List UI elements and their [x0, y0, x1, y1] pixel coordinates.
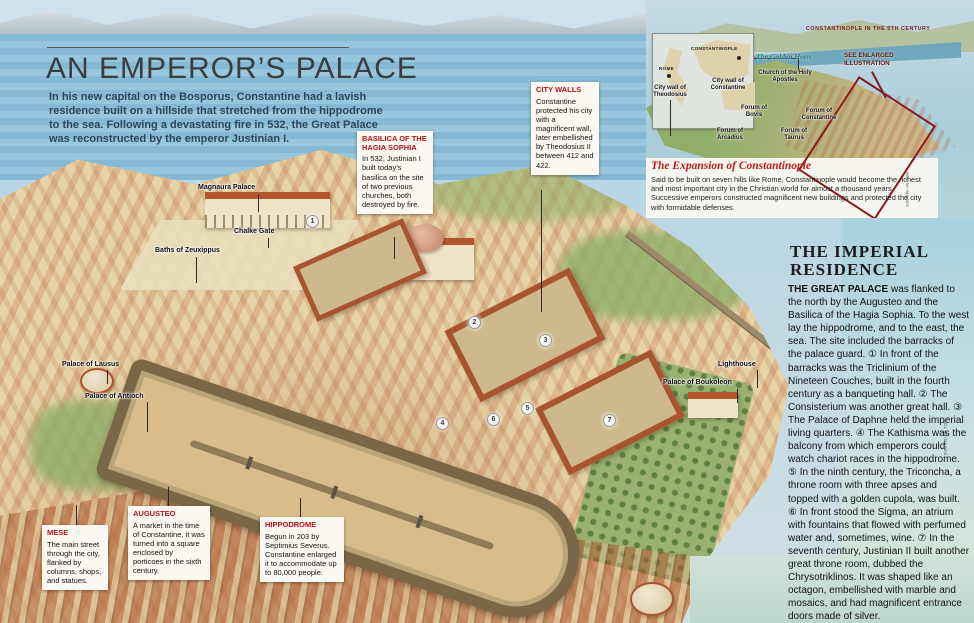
label-chalke-gate: Chalke Gate	[234, 228, 274, 235]
callout-body: A market in the time of Constantine, it …	[133, 521, 205, 576]
callout-hippodrome: HIPPODROME Begun in 203 by Septimius Sev…	[260, 517, 344, 582]
locator-rome-label: ROME	[659, 66, 674, 71]
sidebar-lead: THE GREAT PALACE	[788, 284, 888, 295]
marker-7: 7	[603, 414, 616, 427]
label-forum-of-constantine: Forum of Constantine	[794, 108, 844, 121]
callout-body: Constantine protected his city with a ma…	[536, 97, 594, 170]
label-city-wall-theodosius: City wall of Theodosius	[646, 85, 696, 98]
leader-line	[300, 498, 301, 517]
inset-credit: SOL 90 IMAGES	[905, 172, 910, 207]
callout-title: AUGUSTEO	[133, 510, 205, 519]
leader-line	[541, 190, 542, 312]
sidebar-text: was flanked to the north by the Augusteo…	[788, 284, 969, 622]
constantinople-dot	[737, 56, 741, 60]
label-golden-horn: The Golden Horn	[756, 52, 811, 61]
label-magnaura-palace: Magnaura Palace	[198, 184, 255, 191]
label-church-holy-apostles: Church of the Holy Apostles	[754, 70, 816, 83]
palace-of-lausus-building	[80, 368, 114, 394]
label-forum-of-taurus: Forum of Taurus	[774, 128, 814, 141]
leader-line	[107, 370, 108, 384]
see-enlarged-label: SEE ENLARGED ILLUSTRATION	[844, 52, 918, 67]
label-forum-of-arcadius: Forum of Arcadius	[708, 128, 752, 141]
callout-title: HIPPODROME	[265, 521, 339, 530]
expansion-heading: The Expansion of Constantinople	[651, 160, 811, 172]
label-lighthouse: Lighthouse	[718, 361, 756, 368]
leader-line	[196, 257, 197, 283]
callout-augusteo: AUGUSTEO A market in the time of Constan…	[128, 506, 210, 580]
inset-map-panel: ROME CONSTANTINOPLE CONSTANTINOPLE IN TH…	[646, 0, 974, 218]
callout-body: In 532, Justinian I built today’s basili…	[362, 154, 428, 209]
title-rule	[47, 47, 349, 48]
domed-rotunda-building	[630, 582, 674, 616]
label-city-wall-constantine: City wall of Constantine	[702, 78, 754, 91]
marker-4: 4	[436, 417, 449, 430]
palace-of-boukoleon-building	[688, 392, 738, 418]
marker-1: 1	[306, 215, 319, 228]
marker-2: 2	[468, 316, 481, 329]
page-title: AN EMPEROR’S PALACE	[46, 52, 418, 86]
callout-city-walls: CITY WALLS Constantine protected his cit…	[531, 82, 599, 175]
intro-paragraph: In his new capital on the Bosporus, Cons…	[49, 91, 394, 147]
leader-line	[258, 194, 259, 212]
obelisk-art	[415, 515, 423, 529]
callout-mese: MESE The main street through the city, f…	[42, 525, 108, 590]
locator-constantinople-label: CONSTANTINOPLE	[691, 46, 737, 51]
leader-line	[147, 402, 148, 432]
callout-title: MESE	[47, 529, 103, 538]
obelisk-art	[330, 486, 338, 500]
leader-line	[757, 370, 758, 388]
leader-line	[76, 505, 77, 525]
label-forum-of-bovis: Forum of Bovis	[734, 105, 774, 118]
rome-dot	[667, 74, 671, 78]
leader-line	[168, 487, 169, 506]
label-palace-of-lausus: Palace of Lausus	[62, 361, 119, 368]
leader-line	[268, 238, 269, 248]
inset-caption: CONSTANTINOPLE IN THE 5TH CENTURY	[806, 26, 930, 32]
marker-5: 5	[521, 402, 534, 415]
callout-body: The main street through the city, flanke…	[47, 540, 103, 586]
label-baths-of-zeuxippus: Baths of Zeuxippus	[155, 247, 220, 254]
expansion-body: Said to be built on seven hills like Rom…	[651, 175, 931, 212]
label-palace-of-antioch: Palace of Antioch	[85, 393, 143, 400]
callout-body: Begun in 203 by Septimius Severus. Const…	[265, 532, 339, 578]
marker-3: 3	[539, 334, 552, 347]
obelisk-art	[245, 456, 253, 470]
page-credit: SOL 90 IMAGES	[943, 420, 948, 455]
infographic-page: 1 2 3 4 5 6 7 Magnaura Palace Chalke Gat…	[0, 0, 974, 623]
sidebar-title: THE IMPERIAL RESIDENCE	[790, 243, 950, 280]
callout-title: CITY WALLS	[536, 86, 594, 95]
leader-line	[737, 389, 738, 403]
leader-line	[670, 100, 671, 136]
leader-line	[394, 237, 395, 259]
label-palace-of-boukoleon: Palace of Boukoleon	[663, 379, 732, 386]
marker-6: 6	[487, 413, 500, 426]
